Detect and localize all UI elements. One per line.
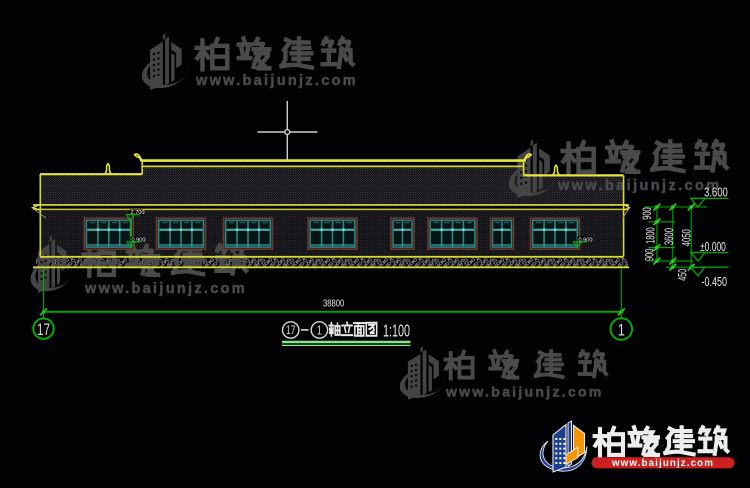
svg-text:450: 450 (677, 269, 690, 281)
svg-text:3.600: 3.600 (704, 186, 728, 200)
svg-text:3600: 3600 (663, 228, 676, 245)
svg-text:4050: 4050 (681, 229, 694, 246)
svg-text:1:100: 1:100 (383, 322, 410, 341)
svg-text:0.900: 0.900 (132, 237, 146, 243)
svg-text:www.baijunjz.com: www.baijunjz.com (84, 281, 247, 297)
svg-text:17: 17 (37, 321, 50, 339)
svg-text:-0.450: -0.450 (702, 275, 727, 289)
svg-text:www.baijunjz.com: www.baijunjz.com (611, 458, 714, 469)
svg-text:1: 1 (618, 321, 625, 340)
svg-text:www.baijunjz.com: www.baijunjz.com (195, 73, 358, 89)
svg-text:17: 17 (286, 325, 296, 338)
svg-text:38800: 38800 (323, 297, 344, 308)
svg-text:900: 900 (641, 207, 654, 220)
svg-text:0.900: 0.900 (579, 237, 593, 243)
svg-text:www.baijunjz.com: www.baijunjz.com (557, 178, 722, 194)
svg-text:1800: 1800 (645, 227, 658, 244)
svg-text:www.baijunjz.com: www.baijunjz.com (445, 384, 604, 400)
svg-text:2.700: 2.700 (131, 210, 145, 216)
svg-text:900: 900 (644, 248, 657, 261)
svg-text:1: 1 (317, 324, 322, 338)
